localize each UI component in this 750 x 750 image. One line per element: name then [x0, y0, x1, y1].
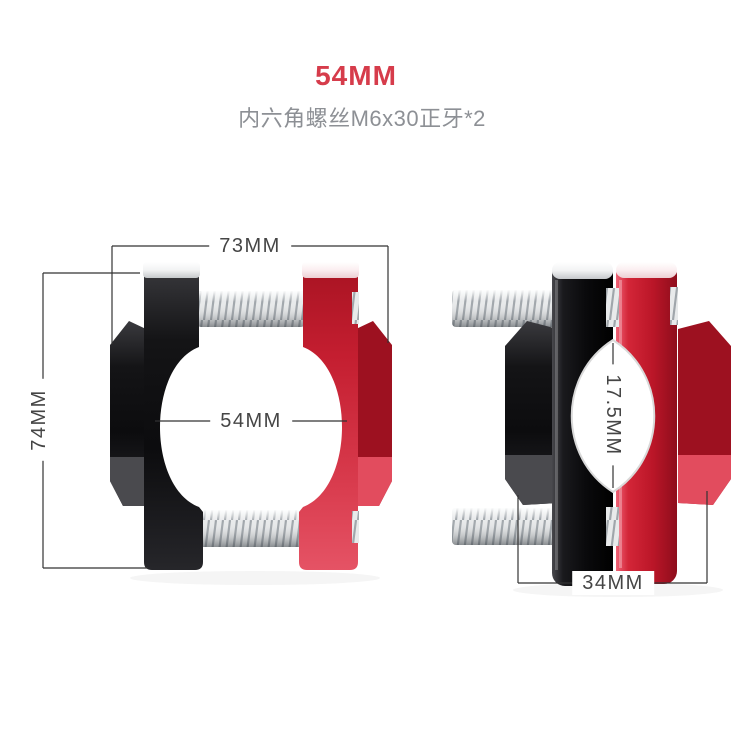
side-screw-bottom: [452, 508, 560, 545]
dimension-label-overall-height: 74MM: [27, 379, 51, 461]
side-red-wing-lower: [678, 455, 731, 505]
dimension-label-side-opening: 17.5MM: [601, 364, 625, 465]
side-black-slab-highlight: [555, 280, 558, 570]
dimension-label-body-depth: 34MM: [572, 571, 654, 595]
clamp-illustration: [0, 0, 750, 750]
red-clamp-top-face: [302, 262, 359, 278]
screw-tip-glimpse-top: [352, 292, 359, 324]
mounting-screw-bottom: [196, 510, 306, 547]
side-red-top-face: [616, 262, 677, 278]
red-clamp-half: [299, 264, 358, 570]
screw-tip-glimpse-bottom: [352, 511, 359, 543]
red-clamp-wing-lower: [356, 457, 392, 506]
seam-thread-bottom: [606, 507, 619, 546]
product-dimension-diagram: 54MM 内六角螺丝M6x30正牙*2: [0, 0, 750, 750]
edge-thread-glimpse: [670, 287, 678, 325]
side-black-top-face: [552, 262, 613, 279]
mounting-screw-top: [196, 291, 306, 327]
side-screw-top: [452, 290, 560, 327]
dimension-label-overall-width: 73MM: [209, 234, 291, 258]
black-clamp-wing-lower: [110, 457, 146, 506]
side-black-wing-lower: [505, 455, 558, 505]
dimension-label-bore-diameter: 54MM: [210, 409, 292, 433]
side-view-clamp: [452, 262, 731, 597]
front-view-shadow: [130, 571, 380, 585]
seam-thread-top: [606, 288, 619, 327]
black-clamp-half: [144, 264, 203, 570]
black-clamp-top-face: [143, 262, 200, 278]
